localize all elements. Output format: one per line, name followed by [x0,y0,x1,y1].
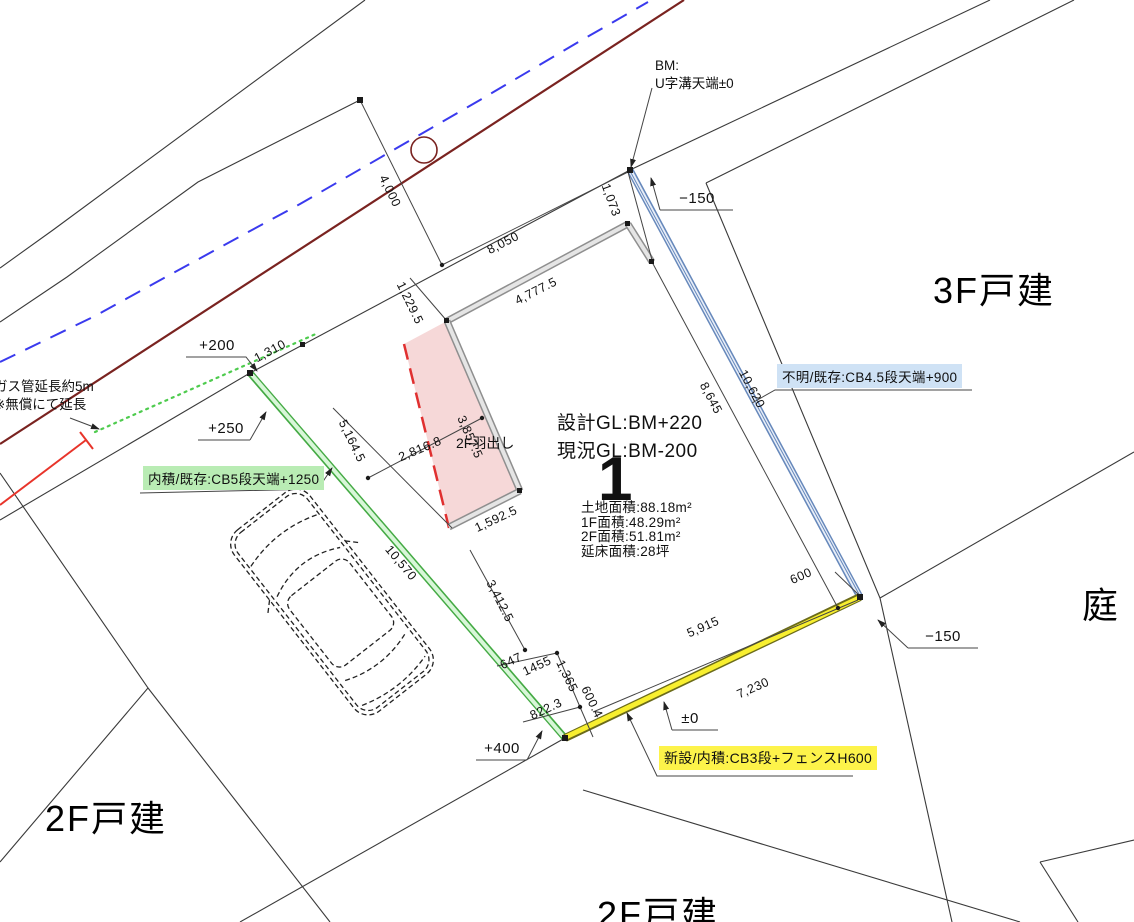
elevation-marker: +200 [199,337,235,354]
green-wall-label: 内積/既存:CB5段天端+1250 [143,466,324,490]
total-floor-area: 延床面積:28坪 [581,545,692,560]
car-outline [215,475,450,729]
gas-note-line1: ガス管延長約5m [0,378,94,396]
blue-wall-label: 不明/既存:CB4.5段天端+900 [777,364,962,388]
road-survey-circle [411,137,437,163]
gas-note: ガス管延長約5m ※無償にて延長 [0,378,94,413]
survey-nodes [247,97,863,741]
land-area: 土地面積:88.18m² [581,501,692,516]
elevation-marker: +250 [208,420,244,437]
parcel-label-2f-bottom: 2F戸建 [597,886,719,922]
elevation-marker: +400 [484,740,520,757]
1f-area: 1F面積:48.29m² [581,516,692,531]
2f-area: 2F面積:51.81m² [581,530,692,545]
parcel-label-3f: 3F戸建 [933,262,1055,314]
design-gl: 設計GL:BM+220 [557,410,702,438]
elevation-marker: −150 [679,190,715,207]
area-table: 土地面積:88.18m² 1F面積:48.29m² 2F面積:51.81m² 延… [581,501,692,559]
site-plan-drawing: BM: U字溝天端±0 ガス管延長約5m ※無償にて延長 設計GL:BM+220… [0,0,1134,922]
benchmark-note-line2: U字溝天端±0 [655,75,734,93]
elevation-marker: −150 [925,628,961,645]
elevation-marker: ±0 [681,710,699,727]
parcel-label-garden: 庭 [1082,577,1120,629]
benchmark-note: BM: U字溝天端±0 [655,57,734,92]
benchmark-note-line1: BM: [655,57,734,75]
yellow-wall-label: 新設/内積:CB3段+フェンスH600 [659,746,877,770]
road-edge-line [0,0,684,444]
gas-note-line2: ※無償にて延長 [0,396,94,414]
road-center-line [0,2,648,362]
parcel-label-2f-left: 2F戸建 [45,790,167,842]
